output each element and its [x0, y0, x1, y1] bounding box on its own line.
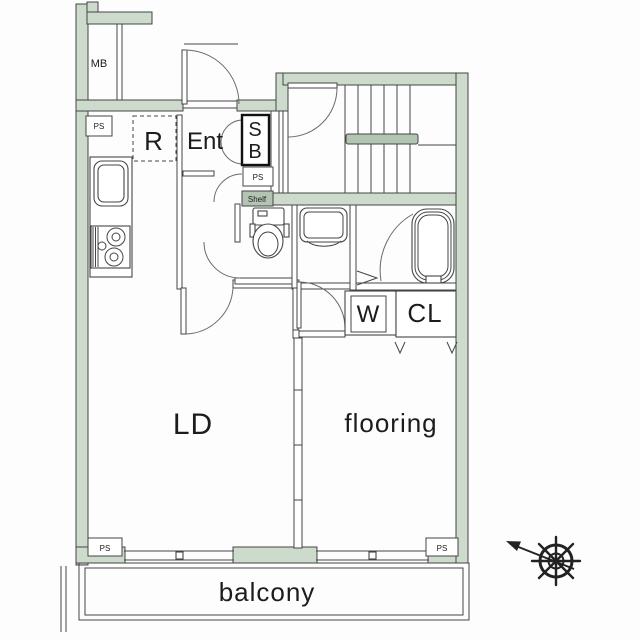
wall-bathroom-bottom — [356, 283, 456, 290]
floor-plan-page: MB PS R Ent S B PS Shelf W CL LD floorin… — [0, 0, 640, 640]
bathroom — [412, 209, 454, 283]
wall-mb-divider — [117, 24, 122, 100]
wall-vestibule-stub — [293, 330, 299, 338]
wall-bath-divider — [350, 205, 356, 290]
flooring-door-leaf — [297, 282, 301, 328]
entrance-door-arc — [185, 50, 239, 104]
label-flooring: flooring — [344, 408, 437, 438]
kitchen-sink-basin — [98, 165, 124, 202]
entrance-door-leaf — [182, 50, 187, 104]
label-living-dining: LD — [173, 408, 213, 441]
stair-door-leaf — [288, 83, 337, 88]
toilet — [250, 208, 289, 258]
bath-door-arc — [380, 214, 413, 281]
washbasin-counter — [300, 208, 347, 242]
label-balcony: balcony — [219, 577, 316, 607]
label-pipe-space-bottom-right: PS — [437, 544, 448, 553]
label-pipe-space-top: PS — [94, 122, 105, 131]
label-shoebox-s: S — [248, 119, 261, 141]
label-washer: W — [357, 301, 380, 328]
label-entrance: Ent — [187, 128, 223, 155]
wall-ent-step — [183, 171, 214, 176]
washbasin — [300, 208, 347, 246]
ld-door-arc — [186, 288, 233, 334]
entrance-door — [182, 44, 239, 108]
wall-kitchen-corridor — [177, 115, 182, 289]
wall-stairhall-left — [283, 111, 288, 193]
flooring-window-latch — [369, 552, 376, 559]
closet-pivot-left-icon — [395, 342, 405, 353]
shoebox-door-arc-bottom — [221, 142, 243, 164]
label-shelf: Shelf — [248, 195, 267, 204]
wall-left-outer — [76, 4, 88, 565]
label-closet: CL — [407, 298, 442, 328]
compass-arrowhead — [506, 541, 521, 551]
wall-bottom-center — [233, 547, 317, 563]
shoebox-door-arc-top — [221, 120, 243, 142]
stair-door-arc — [288, 88, 337, 137]
toilet-side-right — [284, 224, 289, 237]
toilet-door-arc — [204, 242, 240, 278]
stair-handrail — [346, 134, 418, 144]
wall-toilet-bottom — [235, 278, 297, 284]
toilet-bowl — [253, 224, 283, 258]
hall-door-arc — [214, 174, 242, 202]
label-meter-box: MB — [91, 58, 108, 70]
label-shoebox-b: B — [248, 141, 261, 163]
wall-washroom-bottom — [297, 283, 350, 289]
threshold-flooring-door — [299, 331, 345, 337]
wall-washroom-left — [292, 205, 297, 289]
wall-top-strip — [87, 12, 152, 24]
label-pipe-space-mid: PS — [253, 173, 264, 182]
wall-top-left-nub — [87, 2, 98, 13]
compass-icon — [506, 537, 580, 585]
label-refrigerator: R — [144, 126, 164, 156]
wall-bath-top — [273, 193, 456, 205]
ld-door-leaf — [181, 288, 186, 334]
staircase — [288, 83, 456, 193]
floor-plan-svg: MB PS R Ent S B PS Shelf W CL LD floorin… — [0, 0, 640, 640]
wall-mb-bottom — [76, 100, 183, 111]
wall-toilet-left — [235, 204, 240, 242]
bathtub-faucet — [426, 276, 441, 283]
label-pipe-space-bottom-left: PS — [100, 544, 111, 553]
wall-right-outer — [456, 73, 468, 563]
wall-ld-flooring-partition — [294, 338, 302, 548]
toilet-flush-button — [258, 211, 267, 216]
ld-window-latch — [176, 552, 183, 559]
